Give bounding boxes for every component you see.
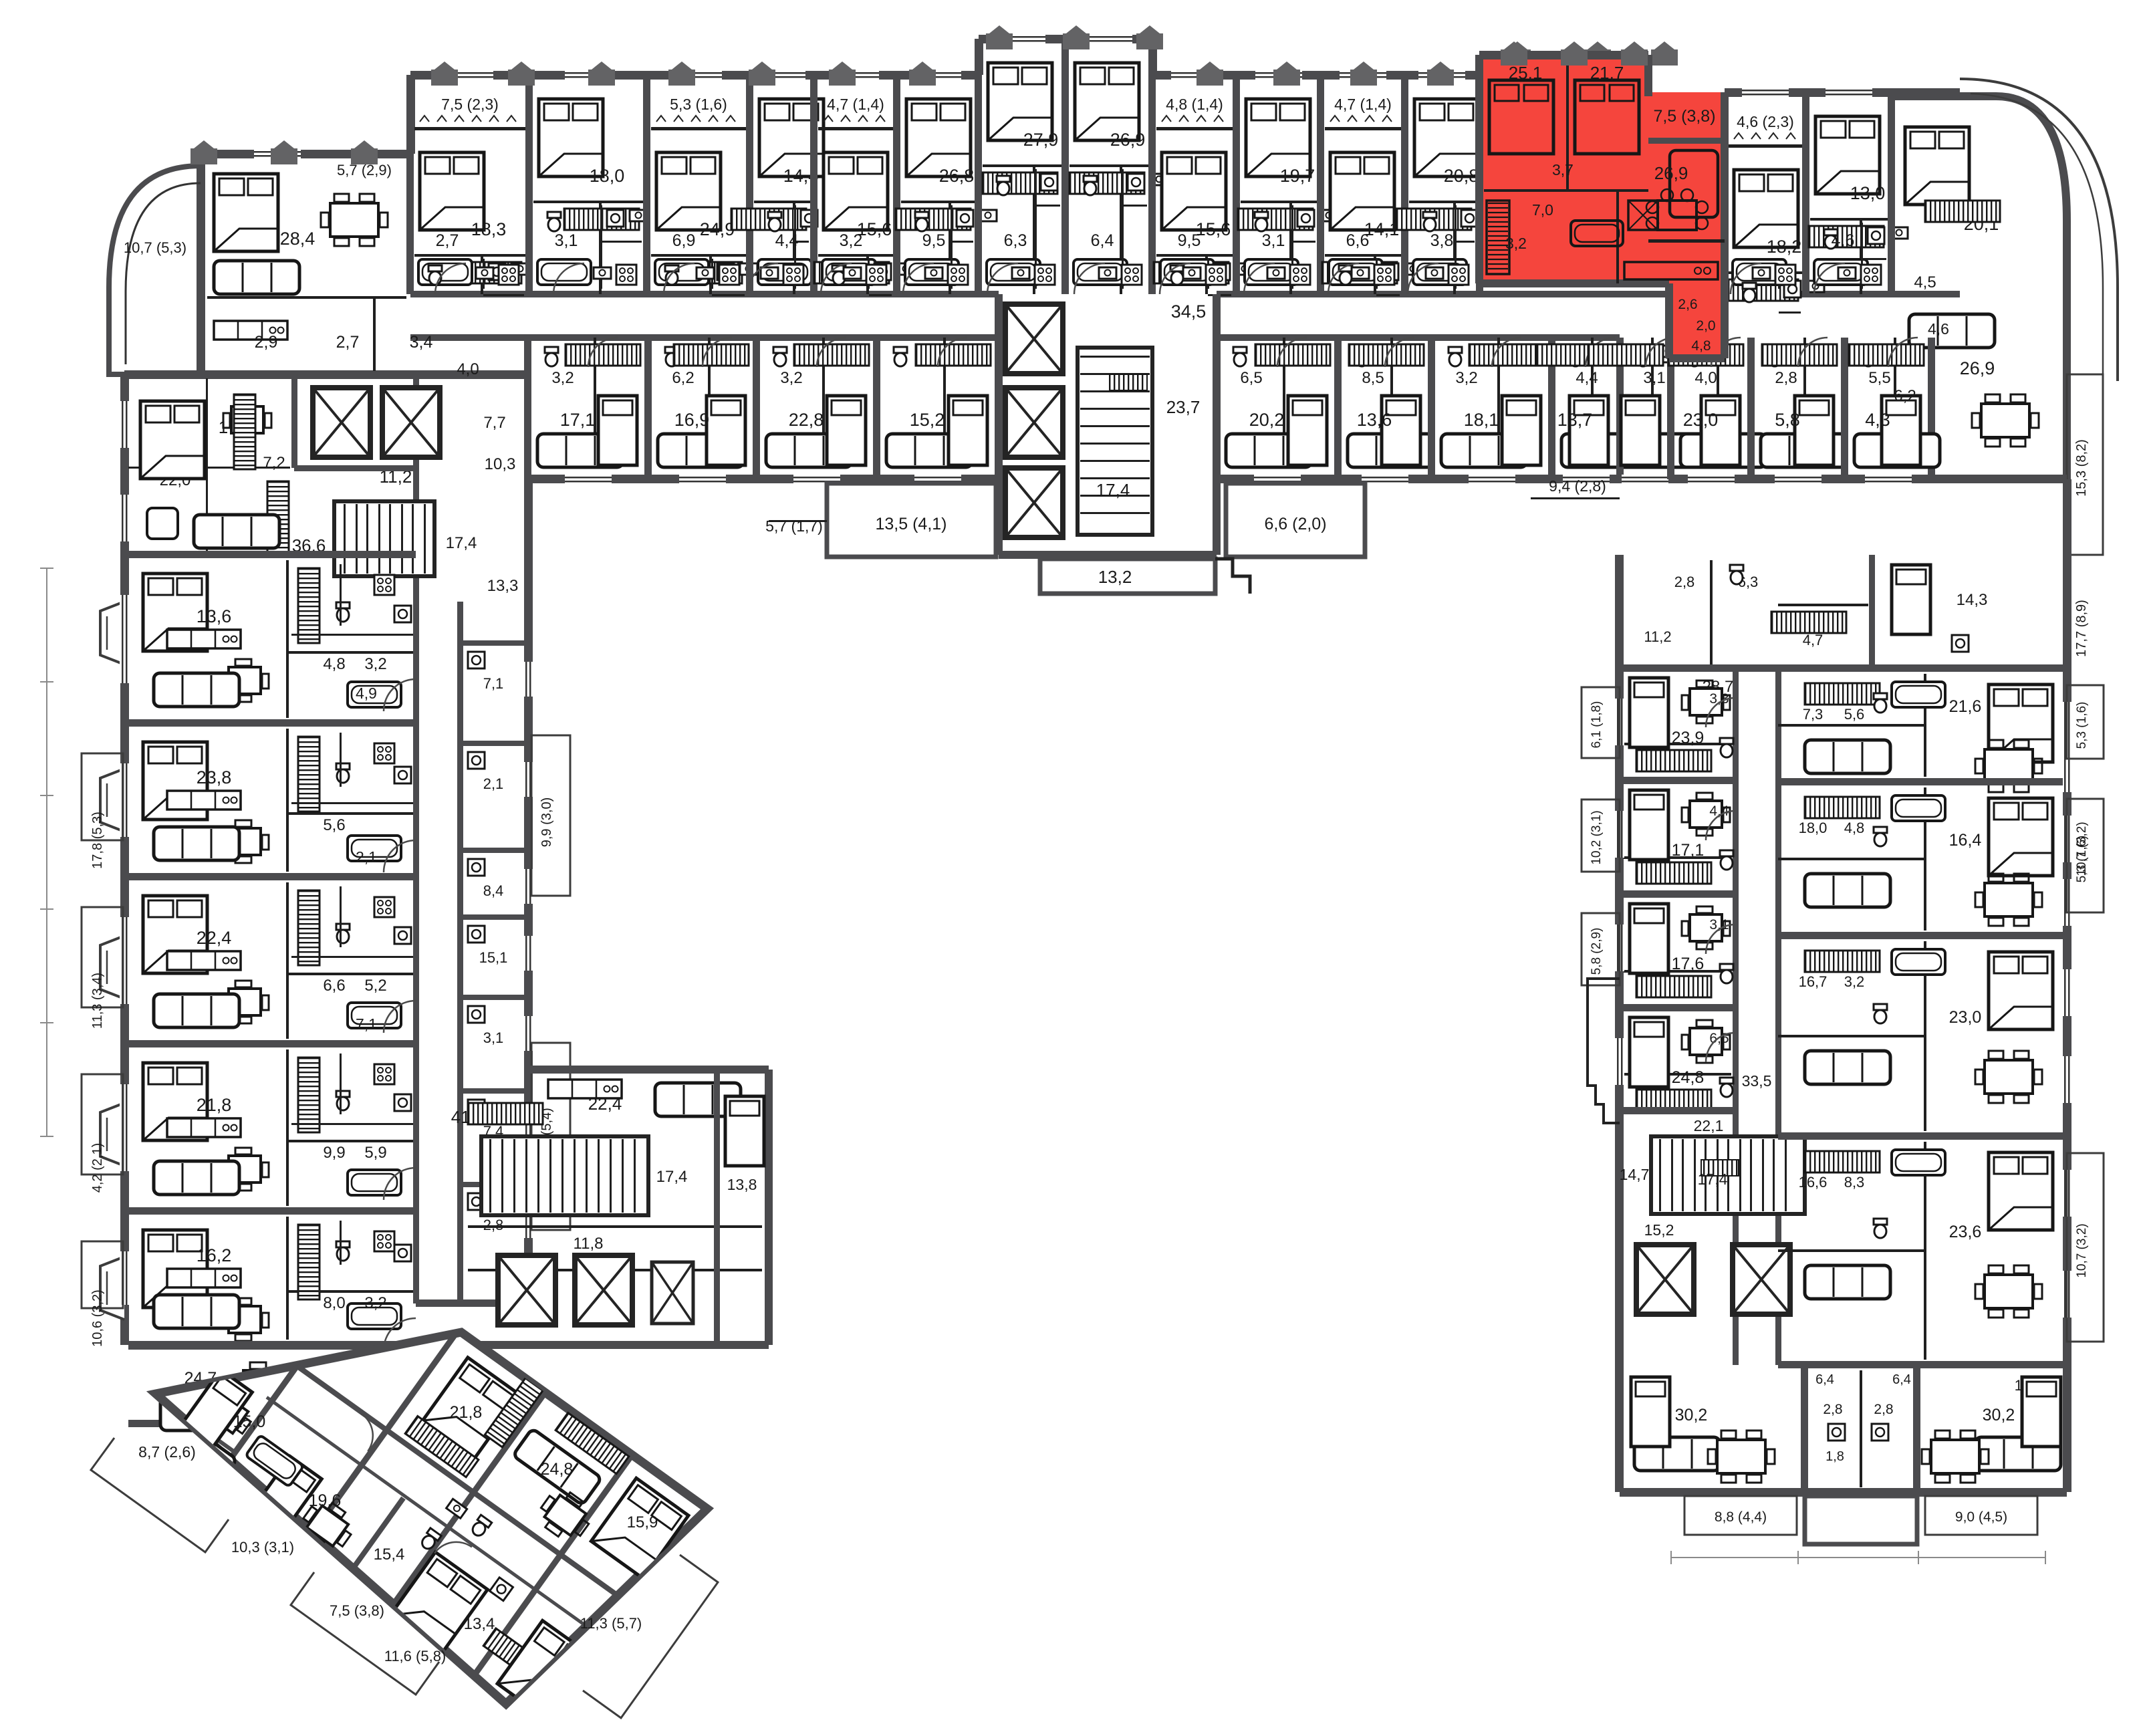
svg-text:16,2: 16,2 bbox=[197, 1245, 232, 1265]
svg-text:16,6: 16,6 bbox=[1799, 1174, 1828, 1191]
svg-text:15,4: 15,4 bbox=[374, 1545, 405, 1564]
svg-text:4,6: 4,6 bbox=[1928, 320, 1949, 338]
svg-text:2,7: 2,7 bbox=[436, 231, 459, 250]
svg-text:21,6: 21,6 bbox=[1949, 697, 1982, 716]
svg-text:4,2 (2,1): 4,2 (2,1) bbox=[90, 1143, 105, 1193]
svg-text:13,3: 13,3 bbox=[487, 577, 519, 595]
svg-text:9,5: 9,5 bbox=[922, 231, 946, 250]
svg-text:18,0: 18,0 bbox=[590, 166, 625, 186]
svg-text:2,8: 2,8 bbox=[1874, 1402, 1893, 1417]
svg-text:27,9: 27,9 bbox=[1023, 130, 1059, 150]
svg-text:3,4: 3,4 bbox=[410, 333, 433, 352]
svg-text:2,0: 2,0 bbox=[1696, 318, 1715, 334]
svg-text:3,2: 3,2 bbox=[551, 369, 574, 387]
svg-text:13,0: 13,0 bbox=[1850, 183, 1886, 203]
svg-text:13,7: 13,7 bbox=[1557, 410, 1593, 430]
svg-text:2,6: 2,6 bbox=[1678, 297, 1697, 312]
svg-text:17,4: 17,4 bbox=[446, 534, 477, 552]
svg-text:2,8: 2,8 bbox=[1775, 369, 1797, 387]
svg-text:7,7: 7,7 bbox=[483, 414, 505, 432]
svg-text:22,1: 22,1 bbox=[1694, 1117, 1724, 1134]
svg-text:24,8: 24,8 bbox=[1672, 1068, 1705, 1087]
svg-text:18,2: 18,2 bbox=[1767, 237, 1802, 257]
svg-text:2,8: 2,8 bbox=[1674, 574, 1695, 590]
svg-text:11,6 (5,8): 11,6 (5,8) bbox=[384, 1648, 447, 1664]
svg-text:15,2: 15,2 bbox=[910, 410, 945, 430]
svg-text:18,1: 18,1 bbox=[1464, 410, 1499, 430]
svg-text:23,0: 23,0 bbox=[1949, 1008, 1982, 1027]
svg-text:7,3: 7,3 bbox=[1803, 706, 1823, 723]
svg-text:30,2: 30,2 bbox=[1983, 1406, 2015, 1424]
svg-text:9,9: 9,9 bbox=[323, 1144, 345, 1162]
svg-text:15,0: 15,0 bbox=[233, 1412, 266, 1431]
svg-text:3,1: 3,1 bbox=[1709, 917, 1729, 933]
svg-text:5,7 (1,7): 5,7 (1,7) bbox=[765, 517, 823, 535]
svg-text:8,7 (2,6): 8,7 (2,6) bbox=[138, 1443, 196, 1461]
svg-text:19,6: 19,6 bbox=[309, 1491, 342, 1510]
svg-text:5,9: 5,9 bbox=[364, 1144, 386, 1162]
svg-text:13,6: 13,6 bbox=[1357, 410, 1392, 430]
svg-text:3,2: 3,2 bbox=[1505, 235, 1527, 252]
svg-text:6,2: 6,2 bbox=[672, 369, 694, 387]
svg-text:16,7: 16,7 bbox=[1799, 973, 1828, 990]
svg-text:17,6: 17,6 bbox=[1672, 955, 1705, 973]
svg-text:23,0: 23,0 bbox=[1683, 410, 1719, 430]
svg-text:2,9: 2,9 bbox=[255, 333, 278, 352]
svg-text:17,4: 17,4 bbox=[1096, 480, 1130, 500]
svg-text:25,1: 25,1 bbox=[1509, 63, 1543, 83]
svg-text:26,9: 26,9 bbox=[1110, 130, 1146, 150]
svg-text:15,6: 15,6 bbox=[1196, 219, 1231, 239]
svg-text:6,1 (1,8): 6,1 (1,8) bbox=[1590, 701, 1604, 749]
svg-text:5,3 (1,6): 5,3 (1,6) bbox=[2075, 702, 2089, 749]
svg-text:17,4: 17,4 bbox=[1698, 1170, 1728, 1188]
svg-text:4,7: 4,7 bbox=[1803, 632, 1823, 648]
svg-text:11,2: 11,2 bbox=[1644, 628, 1671, 645]
svg-text:3,2: 3,2 bbox=[780, 369, 802, 387]
svg-text:3,2: 3,2 bbox=[364, 655, 386, 673]
svg-text:10,3 (3,1): 10,3 (3,1) bbox=[231, 1539, 294, 1556]
svg-text:5,2: 5,2 bbox=[364, 977, 386, 995]
svg-text:9,9 (3,0): 9,9 (3,0) bbox=[539, 797, 554, 847]
svg-text:3,1: 3,1 bbox=[483, 1029, 504, 1046]
svg-text:6,3: 6,3 bbox=[1004, 231, 1027, 250]
svg-text:5,8: 5,8 bbox=[1775, 410, 1800, 430]
svg-text:9,4 (2,8): 9,4 (2,8) bbox=[1549, 477, 1606, 495]
svg-text:5,3 (1,6): 5,3 (1,6) bbox=[670, 96, 727, 113]
svg-text:23,7: 23,7 bbox=[1166, 397, 1201, 417]
svg-text:34,5: 34,5 bbox=[1171, 301, 1207, 322]
svg-text:6,6 (2,0): 6,6 (2,0) bbox=[1264, 515, 1326, 533]
svg-text:3,8: 3,8 bbox=[1430, 231, 1454, 250]
svg-text:8,0: 8,0 bbox=[323, 1294, 345, 1312]
svg-text:17,1: 17,1 bbox=[560, 410, 596, 430]
svg-text:7,5 (3,8): 7,5 (3,8) bbox=[1653, 107, 1715, 126]
svg-text:6,4: 6,4 bbox=[1091, 231, 1114, 250]
svg-text:24,8: 24,8 bbox=[541, 1460, 574, 1479]
svg-text:26,8: 26,8 bbox=[939, 166, 975, 186]
svg-text:9,5: 9,5 bbox=[1178, 231, 1201, 250]
svg-text:11,8: 11,8 bbox=[574, 1235, 604, 1253]
svg-text:2,8: 2,8 bbox=[483, 1217, 504, 1233]
svg-text:15,1: 15,1 bbox=[479, 949, 508, 966]
svg-text:16,9: 16,9 bbox=[674, 410, 710, 430]
svg-text:7,2: 7,2 bbox=[263, 454, 285, 472]
svg-text:13,8: 13,8 bbox=[727, 1176, 757, 1193]
svg-text:11,3 (3,4): 11,3 (3,4) bbox=[90, 973, 105, 1029]
svg-text:7,5 (3,8): 7,5 (3,8) bbox=[330, 1602, 384, 1619]
svg-text:13,2: 13,2 bbox=[1098, 567, 1132, 587]
svg-text:6,6: 6,6 bbox=[1346, 231, 1370, 250]
svg-text:9,0 (4,5): 9,0 (4,5) bbox=[1955, 1509, 2007, 1525]
svg-text:17,7 (8,9): 17,7 (8,9) bbox=[2074, 600, 2089, 657]
svg-text:4,8: 4,8 bbox=[1844, 820, 1865, 836]
svg-text:6,9: 6,9 bbox=[672, 231, 696, 250]
svg-text:5,5: 5,5 bbox=[1868, 369, 1890, 387]
svg-text:5,6: 5,6 bbox=[1844, 706, 1865, 723]
svg-text:10,7 (3,2): 10,7 (3,2) bbox=[2075, 822, 2089, 876]
svg-text:10,6 (3,2): 10,6 (3,2) bbox=[90, 1289, 105, 1347]
svg-text:20,2: 20,2 bbox=[1249, 410, 1285, 430]
svg-text:22,4: 22,4 bbox=[197, 928, 232, 948]
svg-text:4,0: 4,0 bbox=[1694, 369, 1717, 387]
svg-text:22,8: 22,8 bbox=[789, 410, 824, 430]
svg-text:13,5 (4,1): 13,5 (4,1) bbox=[875, 515, 947, 533]
svg-text:13,4: 13,4 bbox=[464, 1615, 495, 1633]
svg-text:4,8 (1,4): 4,8 (1,4) bbox=[1166, 96, 1223, 113]
svg-text:5,8 (2,9): 5,8 (2,9) bbox=[1590, 928, 1604, 975]
svg-text:3,1: 3,1 bbox=[555, 231, 578, 250]
svg-text:3,1: 3,1 bbox=[1262, 231, 1285, 250]
svg-text:4,0: 4,0 bbox=[457, 360, 479, 378]
svg-text:8,8 (4,4): 8,8 (4,4) bbox=[1715, 1509, 1767, 1525]
svg-text:15,2: 15,2 bbox=[1644, 1221, 1674, 1239]
svg-text:1,8: 1,8 bbox=[1826, 1449, 1844, 1464]
svg-text:3,2: 3,2 bbox=[1455, 369, 1477, 387]
svg-text:20,8: 20,8 bbox=[1444, 166, 1479, 186]
svg-text:3,2: 3,2 bbox=[1844, 973, 1865, 990]
svg-text:15,3 (8,2): 15,3 (8,2) bbox=[2074, 439, 2089, 497]
svg-text:18,3: 18,3 bbox=[471, 219, 507, 239]
svg-text:4,6 (2,3): 4,6 (2,3) bbox=[1737, 113, 1794, 130]
svg-text:30,2: 30,2 bbox=[1675, 1406, 1708, 1424]
svg-text:17,8 (5,3): 17,8 (5,3) bbox=[90, 812, 105, 869]
svg-text:4,8: 4,8 bbox=[1691, 338, 1711, 354]
svg-text:2,1: 2,1 bbox=[483, 775, 504, 792]
svg-text:6,4: 6,4 bbox=[1815, 1372, 1834, 1387]
svg-text:3,2: 3,2 bbox=[840, 231, 863, 250]
svg-text:7,1: 7,1 bbox=[356, 1015, 377, 1033]
svg-text:26,9: 26,9 bbox=[1960, 358, 1995, 378]
svg-text:4,8: 4,8 bbox=[323, 655, 345, 673]
svg-text:21,8: 21,8 bbox=[197, 1095, 232, 1115]
svg-text:28,4: 28,4 bbox=[280, 229, 316, 249]
svg-text:26,9: 26,9 bbox=[1654, 163, 1688, 183]
svg-text:4,3: 4,3 bbox=[1865, 410, 1890, 430]
svg-text:21,8: 21,8 bbox=[450, 1403, 483, 1422]
svg-text:19,7: 19,7 bbox=[1280, 166, 1315, 186]
svg-text:14,7: 14,7 bbox=[1620, 1166, 1650, 1183]
svg-text:10,2 (3,1): 10,2 (3,1) bbox=[1590, 810, 1604, 864]
svg-text:4,5: 4,5 bbox=[1914, 273, 1936, 291]
svg-text:14,3: 14,3 bbox=[1957, 591, 1988, 609]
svg-text:14,1: 14,1 bbox=[1364, 219, 1400, 239]
svg-text:4,7 (1,4): 4,7 (1,4) bbox=[1334, 96, 1392, 113]
svg-text:23,9: 23,9 bbox=[1672, 729, 1705, 747]
svg-text:7,5 (2,3): 7,5 (2,3) bbox=[441, 96, 499, 113]
svg-text:4,9: 4,9 bbox=[356, 685, 377, 702]
svg-text:7,0: 7,0 bbox=[1532, 201, 1553, 219]
svg-text:23,8: 23,8 bbox=[197, 767, 232, 787]
svg-text:17,1: 17,1 bbox=[1672, 841, 1705, 860]
svg-text:13,6: 13,6 bbox=[197, 606, 232, 626]
svg-text:17,4: 17,4 bbox=[656, 1168, 688, 1186]
svg-text:23,6: 23,6 bbox=[1949, 1223, 1982, 1241]
svg-text:10,7 (3,2): 10,7 (3,2) bbox=[2075, 1223, 2089, 1277]
svg-text:6,6: 6,6 bbox=[323, 977, 345, 995]
svg-text:4,4: 4,4 bbox=[1709, 803, 1729, 819]
svg-text:2,8: 2,8 bbox=[1823, 1402, 1842, 1417]
svg-text:8,3: 8,3 bbox=[1844, 1174, 1865, 1191]
svg-text:5,6: 5,6 bbox=[323, 816, 345, 834]
svg-text:8,4: 8,4 bbox=[483, 882, 504, 899]
svg-text:3,2: 3,2 bbox=[364, 1294, 386, 1312]
svg-text:15,9: 15,9 bbox=[627, 1513, 658, 1531]
svg-text:21,7: 21,7 bbox=[1590, 63, 1624, 83]
svg-text:33,5: 33,5 bbox=[1742, 1072, 1772, 1090]
svg-text:4,7 (1,4): 4,7 (1,4) bbox=[827, 96, 884, 113]
svg-text:2,7: 2,7 bbox=[336, 333, 360, 352]
svg-text:11,3 (5,7): 11,3 (5,7) bbox=[580, 1615, 642, 1632]
svg-text:3,7: 3,7 bbox=[1552, 161, 1574, 178]
svg-text:6,4: 6,4 bbox=[1892, 1372, 1911, 1387]
svg-text:3,1: 3,1 bbox=[1643, 369, 1665, 387]
svg-text:8,5: 8,5 bbox=[1362, 369, 1384, 387]
svg-text:18,0: 18,0 bbox=[1799, 820, 1828, 836]
svg-text:16,4: 16,4 bbox=[1949, 831, 1982, 850]
svg-text:7,1: 7,1 bbox=[483, 675, 504, 692]
svg-text:10,7 (5,3): 10,7 (5,3) bbox=[124, 239, 186, 256]
svg-text:4,6: 4,6 bbox=[1832, 231, 1855, 250]
svg-text:24,9: 24,9 bbox=[700, 219, 735, 239]
svg-text:4,4: 4,4 bbox=[1576, 369, 1598, 387]
svg-text:6,5: 6,5 bbox=[1240, 369, 1262, 387]
svg-text:6,2: 6,2 bbox=[1894, 387, 1916, 405]
svg-text:4,4: 4,4 bbox=[775, 231, 799, 250]
svg-text:2,1: 2,1 bbox=[356, 848, 377, 866]
svg-text:10,3: 10,3 bbox=[485, 455, 516, 473]
